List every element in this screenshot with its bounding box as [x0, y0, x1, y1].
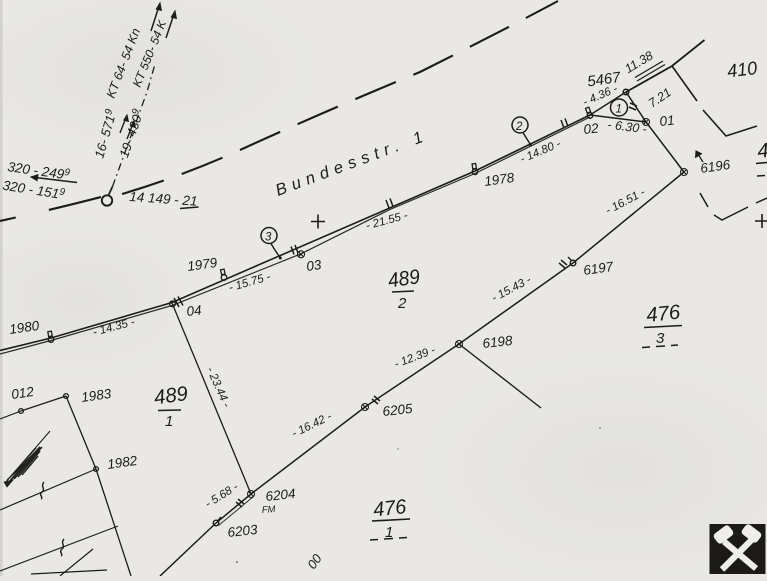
svg-text:1: 1 [165, 413, 173, 430]
svg-text:6205: 6205 [382, 401, 414, 419]
svg-text:489: 489 [386, 265, 421, 292]
svg-text:6203: 6203 [227, 522, 259, 540]
svg-text:FM: FM [261, 504, 276, 516]
svg-text:47: 47 [756, 138, 767, 163]
svg-text:02: 02 [583, 120, 600, 137]
svg-text:476: 476 [645, 300, 682, 326]
svg-text:2: 2 [515, 121, 523, 133]
svg-text:6204: 6204 [265, 486, 296, 504]
svg-text:476: 476 [372, 495, 408, 521]
svg-text:3: 3 [656, 330, 665, 347]
svg-text:1: 1 [616, 104, 622, 116]
svg-text:6198: 6198 [482, 333, 514, 351]
svg-text:3: 3 [265, 232, 272, 244]
svg-text:489: 489 [152, 382, 189, 410]
svg-text:012: 012 [10, 384, 35, 402]
svg-text:04: 04 [186, 302, 203, 318]
svg-text:01: 01 [659, 112, 676, 128]
svg-text:2: 2 [397, 295, 407, 312]
svg-text:410: 410 [726, 57, 759, 82]
svg-text:03: 03 [305, 257, 322, 274]
